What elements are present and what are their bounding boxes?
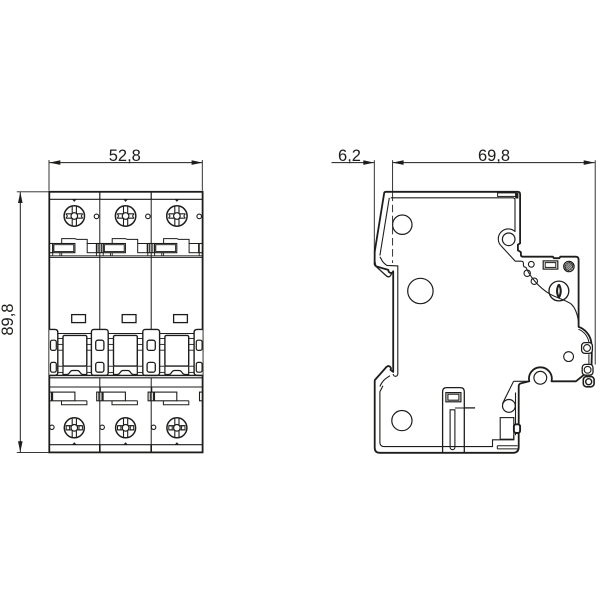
svg-text:89,8: 89,8 bbox=[0, 304, 17, 336]
svg-text:69,8: 69,8 bbox=[478, 147, 510, 165]
svg-text:52,8: 52,8 bbox=[109, 147, 141, 165]
svg-text:6,2: 6,2 bbox=[338, 147, 361, 165]
